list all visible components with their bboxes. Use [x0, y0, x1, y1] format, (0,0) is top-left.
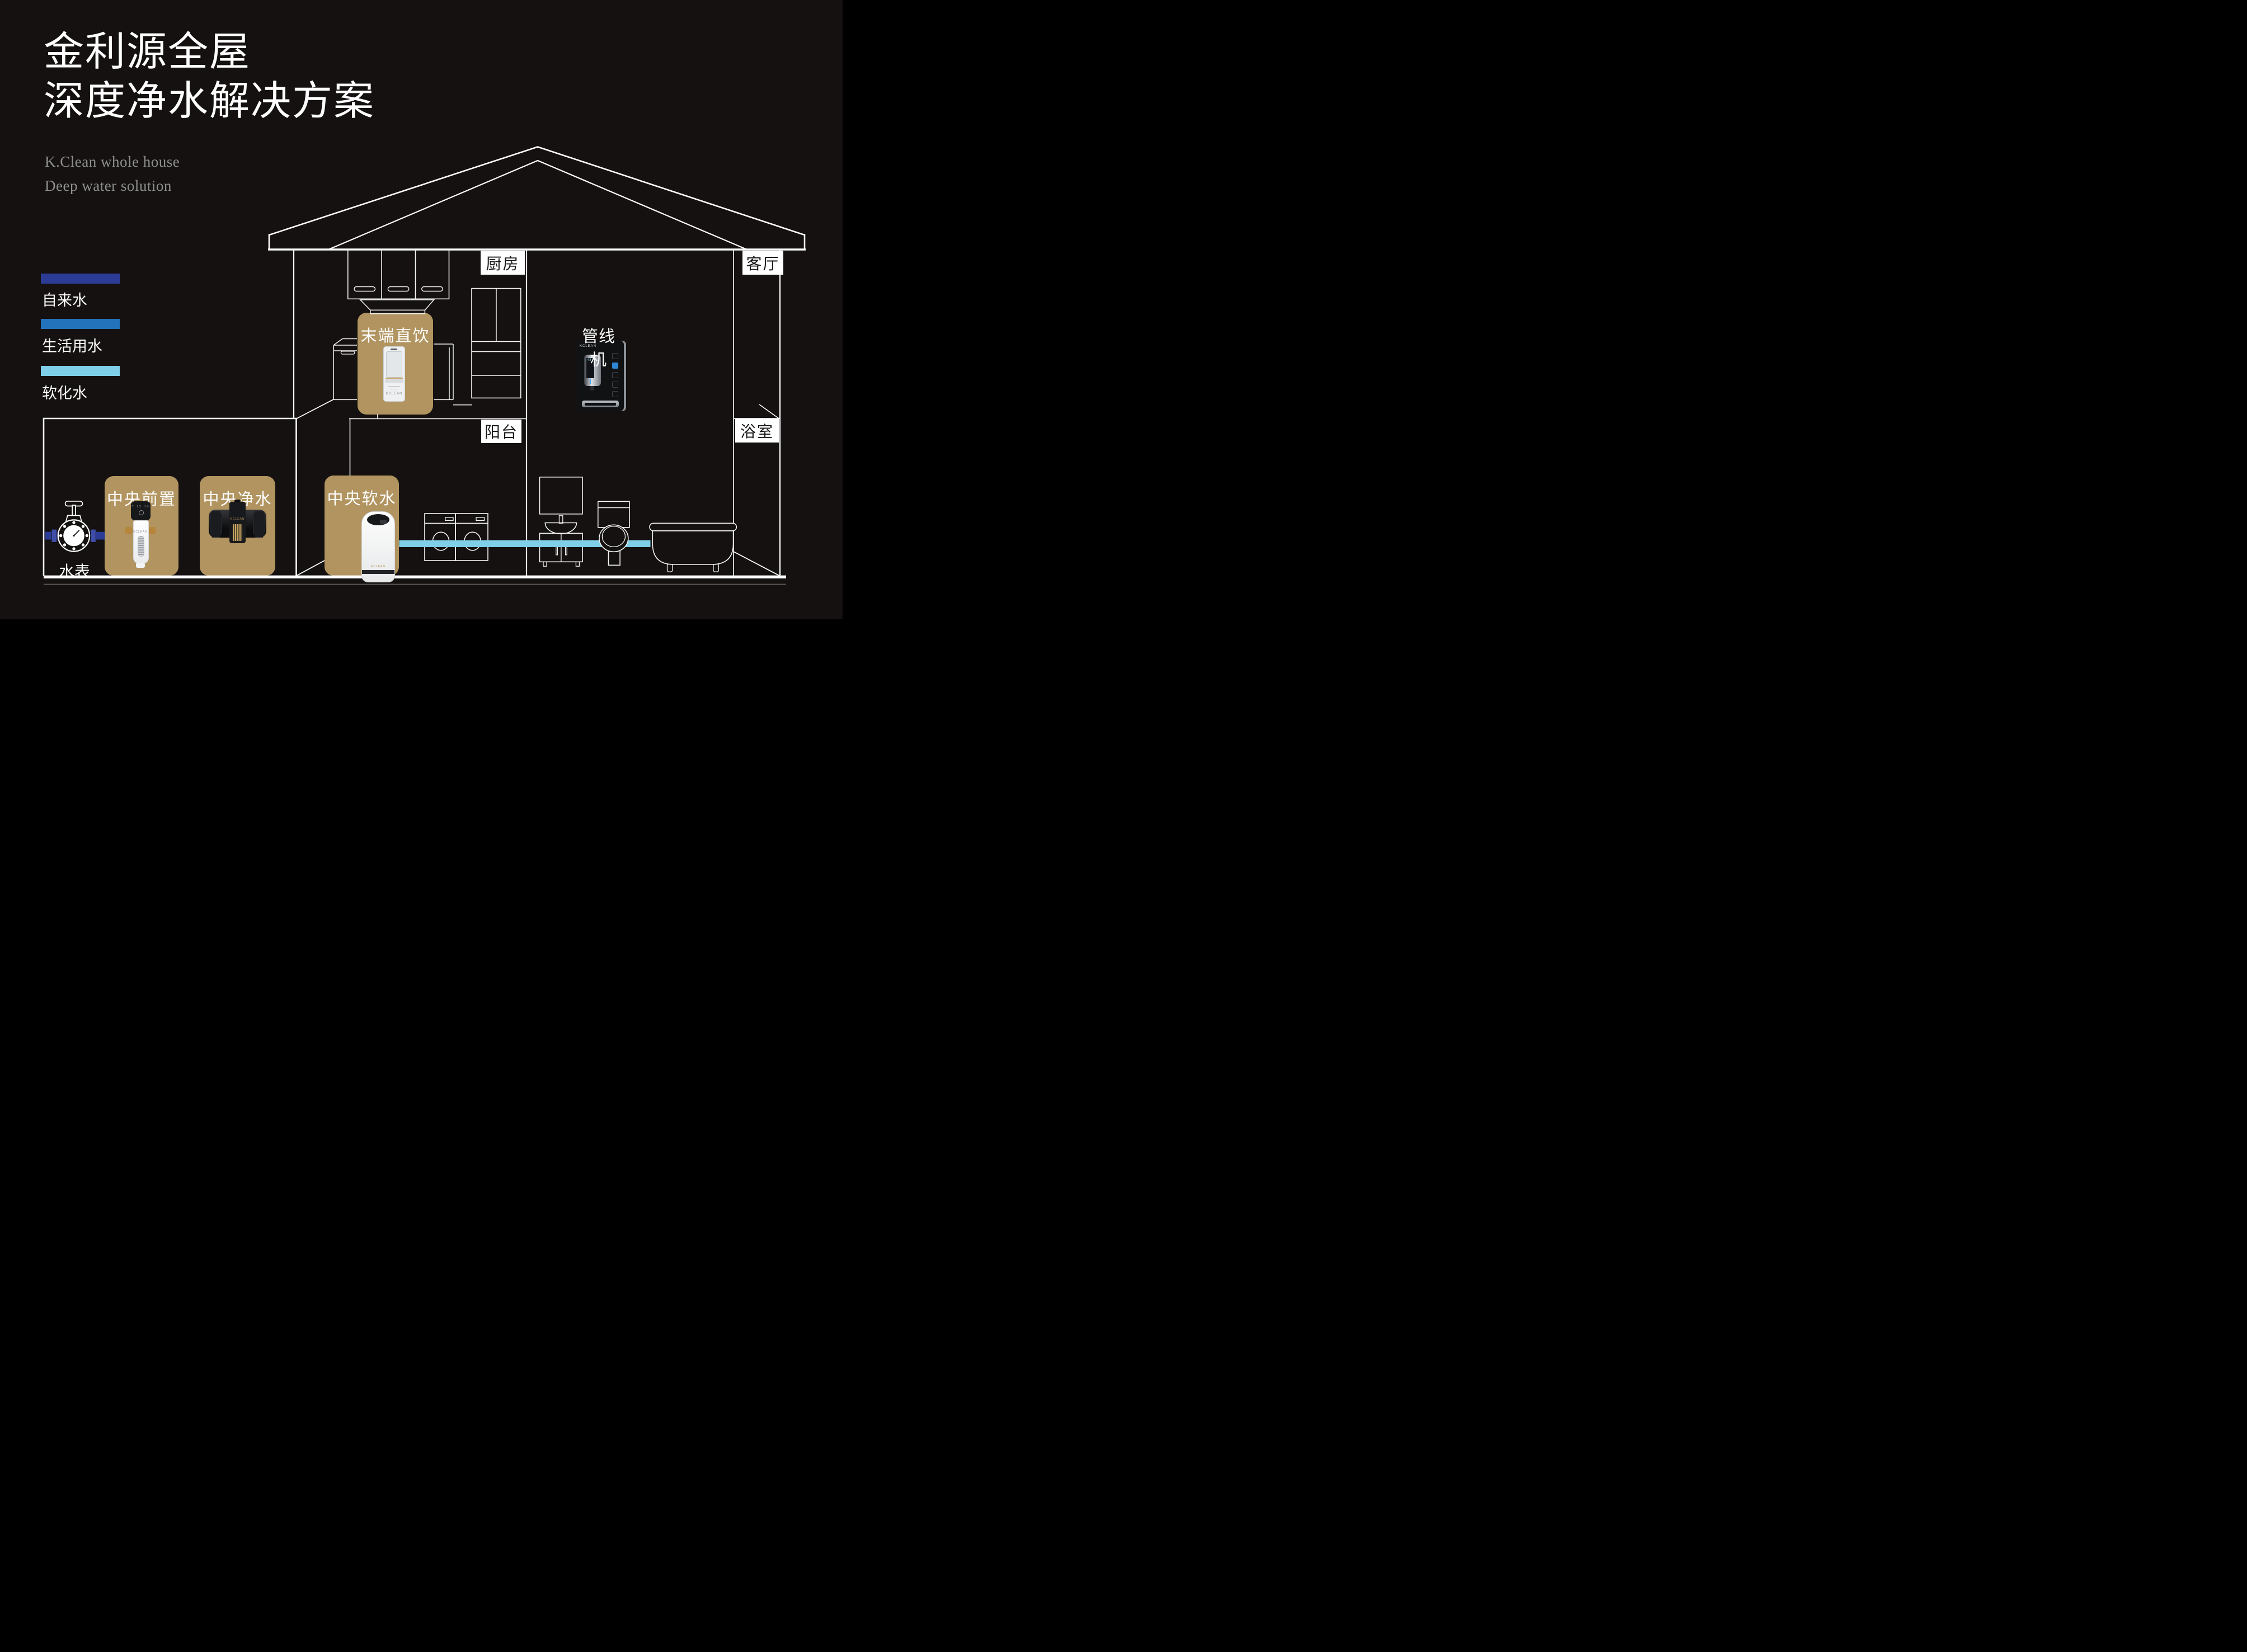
legend-label-tap-water: 自来水 — [42, 288, 87, 310]
softener-brand: KCLEAN — [362, 565, 394, 568]
sink-cabinet — [333, 339, 357, 400]
central-purifier-device: KCLEAN — [209, 502, 266, 543]
room-label-bathroom-text: 浴室 — [740, 420, 774, 442]
terminal-purifier-controls-2 — [390, 389, 398, 389]
purifier-brand: KCLEAN — [209, 517, 266, 521]
fridge — [472, 289, 521, 398]
terminal-purifier-band — [385, 379, 403, 383]
softened-water-pipe — [399, 540, 650, 547]
pipeline-machine-button-warm — [612, 372, 618, 378]
softener-bottom-band — [362, 570, 394, 574]
central-prefilter-device: 7 15 30 KCLEAN — [125, 501, 156, 571]
kitchen-cabinets — [348, 250, 449, 299]
card-title-softener: 中央软水 — [325, 476, 399, 509]
subtitle-line-2: Deep water solution — [45, 174, 180, 198]
terminal-purifier-controls — [388, 386, 400, 387]
softener-top-panel — [367, 514, 389, 525]
room-label-kitchen: 厨房 — [481, 251, 525, 275]
room-label-living-room-text: 客厅 — [746, 252, 779, 274]
purifier-end-cap-left — [210, 511, 222, 538]
page-subtitle: K.Clean whole house Deep water solution — [45, 150, 180, 197]
prefilter-brand: KCLEAN — [125, 530, 156, 534]
page-title: 金利源全屋 深度净水解决方案 — [44, 28, 375, 126]
floor-slab — [44, 576, 786, 585]
room-label-kitchen-text: 厨房 — [486, 252, 519, 274]
bathroom-mirror — [540, 477, 583, 514]
terminal-purifier-gold-line — [386, 378, 403, 379]
room-label-balcony: 阳台 — [481, 420, 521, 443]
prefilter-power-icon — [139, 510, 144, 515]
purifier-end-cap-right — [253, 511, 265, 538]
purifier-gold-grille — [233, 524, 242, 541]
room-label-living-room: 客厅 — [742, 251, 783, 275]
bathroom-basin — [545, 516, 576, 534]
washing-machines — [425, 514, 488, 561]
range-hood — [360, 300, 434, 314]
water-meter-icon — [58, 501, 90, 552]
bathtub — [650, 523, 736, 572]
terminal-purifier-device: KCLEAN — [383, 346, 405, 402]
terminal-purifier-brand: KCLEAN — [384, 392, 405, 396]
card-title-terminal: 末端直饮 — [358, 313, 433, 346]
roof-outline — [268, 147, 806, 251]
pipeline-machine-button-cold — [612, 382, 618, 388]
prefilter-bottom-cap — [136, 563, 145, 568]
room-label-balcony-text: 阳台 — [485, 420, 518, 443]
side-table — [434, 344, 473, 405]
legend-label-softened-water: 软化水 — [42, 381, 87, 403]
legend-swatch-domestic-water — [41, 319, 120, 329]
pipeline-machine-indicator — [590, 379, 591, 384]
tap-water-pipe — [45, 529, 105, 542]
pipeline-machine-spout — [590, 386, 594, 390]
title-line-2: 深度净水解决方案 — [44, 77, 375, 126]
toilet — [598, 501, 629, 565]
central-softener-device: KCLEAN — [361, 511, 395, 582]
legend-swatch-softened-water — [41, 366, 120, 376]
legend-swatch-tap-water — [41, 274, 120, 284]
softener-display — [380, 520, 387, 524]
pipeline-machine-label: 管线机 — [575, 323, 623, 370]
bathroom-vanity — [540, 533, 583, 566]
pipeline-machine-tray-slot — [585, 403, 616, 406]
legend-label-domestic-water: 生活用水 — [42, 334, 102, 356]
prefilter-display-digits: 7 15 30 — [131, 505, 151, 509]
terminal-purifier-slot — [391, 349, 397, 350]
poster-canvas: 金利源全屋 深度净水解决方案 K.Clean whole house Deep … — [0, 0, 843, 619]
prefilter-display-head: 7 15 30 — [131, 501, 151, 520]
prefilter-sight-window — [138, 536, 144, 557]
subtitle-line-1: K.Clean whole house — [45, 150, 180, 174]
pipeline-machine-button-lock — [612, 391, 618, 397]
water-meter-label: 水表 — [56, 559, 93, 582]
title-line-1: 金利源全屋 — [44, 28, 375, 77]
room-label-bathroom: 浴室 — [735, 418, 779, 443]
terminal-purifier-panel — [386, 351, 402, 378]
